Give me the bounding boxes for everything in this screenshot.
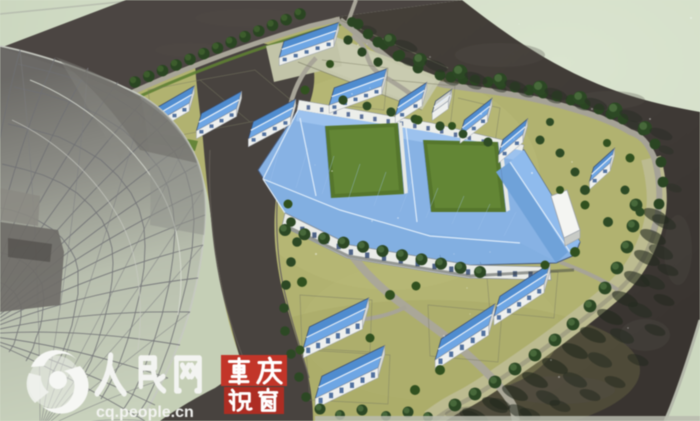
svg-text:cq.people.cn: cq.people.cn <box>96 404 194 421</box>
